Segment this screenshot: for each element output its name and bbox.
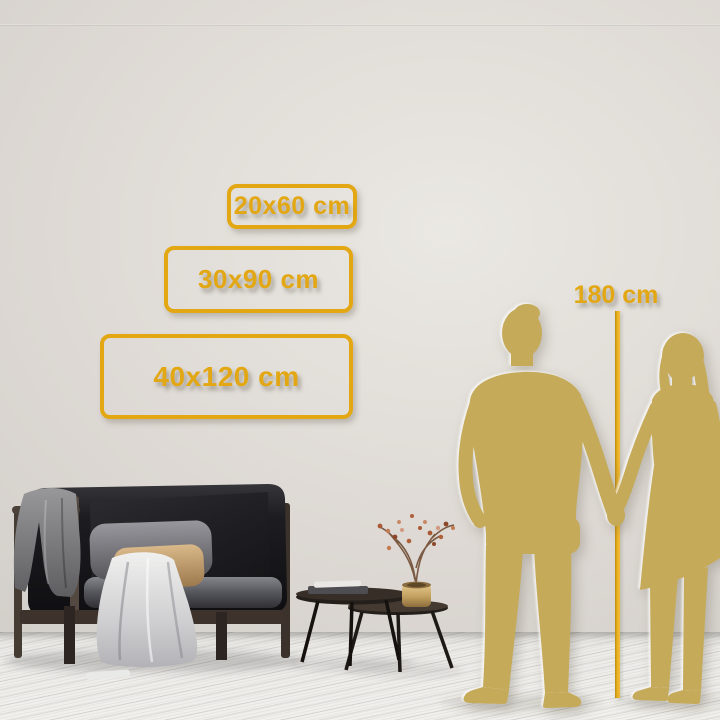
woman-silhouette xyxy=(609,333,720,704)
man-silhouette xyxy=(464,304,625,708)
size-guide-scene: 180 cm xyxy=(0,0,720,720)
couple-layer xyxy=(0,0,720,720)
